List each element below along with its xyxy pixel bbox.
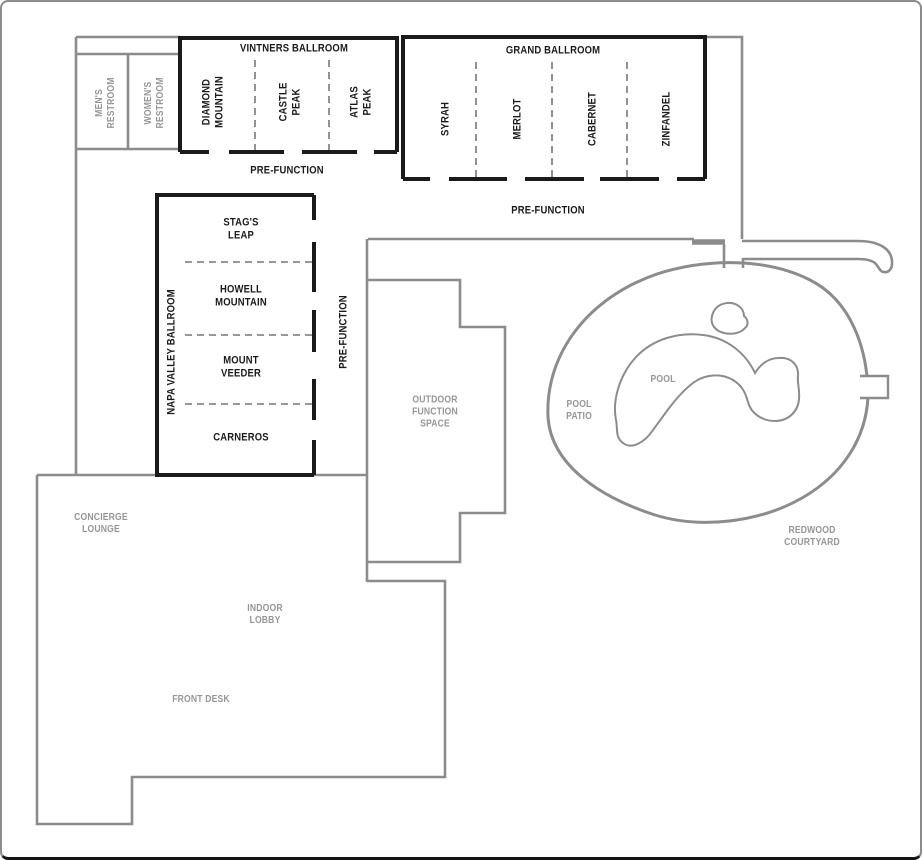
redwood-courtyard-label: REDWOOD COURTYARD [784, 525, 840, 549]
room-label-stags-leap: STAG'S LEAP [223, 217, 258, 244]
indoor-lobby-label: INDOOR LOBBY [247, 603, 282, 627]
corridor-walls [705, 37, 742, 239]
room-label-carneros: CARNEROS [213, 431, 269, 444]
walkway-outline [742, 241, 892, 272]
pool-area-shapes [548, 263, 888, 523]
pool-patio-label: POOL PATIO [566, 399, 592, 423]
spa-outline [712, 303, 748, 334]
room-label-howell-mountain: HOWELL MOUNTAIN [215, 284, 267, 311]
mens-restroom-label: MEN'S RESTROOM [94, 77, 118, 128]
room-label-atlas-peak: ATLAS PEAK [349, 86, 376, 118]
room-label-mount-veeder: MOUNT VEEDER [221, 355, 261, 382]
room-label-castle-peak: CASTLE PEAK [278, 83, 305, 122]
pool-outline [615, 334, 799, 445]
womens-restroom-label: WOMEN'S RESTROOM [143, 77, 167, 128]
room-label-cabernet: CABERNET [586, 92, 599, 146]
building-walls [37, 37, 892, 824]
grand-dividers [476, 62, 627, 177]
concierge-lounge-label: CONCIERGE LOUNGE [74, 512, 128, 536]
floorplan-drawing [2, 2, 922, 860]
room-label-diamond-mountain: DIAMOND MOUNTAIN [201, 76, 228, 128]
prefunction-label-napa: PRE-FUNCTION [337, 295, 350, 369]
pool-label: POOL [650, 374, 675, 386]
prefunction-label-grand: PRE-FUNCTION [511, 204, 585, 217]
front-desk-label: FRONT DESK [172, 694, 230, 706]
room-label-syrah: SYRAH [439, 102, 452, 136]
vintners-ballroom-title: VINTNERS BALLROOM [240, 42, 348, 55]
napa-valley-ballroom-title: NAPA VALLEY BALLROOM [165, 289, 178, 415]
floorplan-page: VINTNERS BALLROOM DIAMOND MOUNTAIN CASTL… [0, 0, 922, 860]
prefunction-label-vintners: PRE-FUNCTION [250, 164, 324, 177]
room-label-zinfandel: ZINFANDEL [660, 92, 673, 147]
room-label-merlot: MERLOT [511, 99, 524, 140]
pool-patio-outline [548, 263, 868, 523]
outdoor-function-space-label: OUTDOOR FUNCTION SPACE [412, 395, 458, 432]
grand-ballroom-title: GRAND BALLROOM [506, 44, 600, 57]
patio-exit-notch [860, 376, 888, 398]
